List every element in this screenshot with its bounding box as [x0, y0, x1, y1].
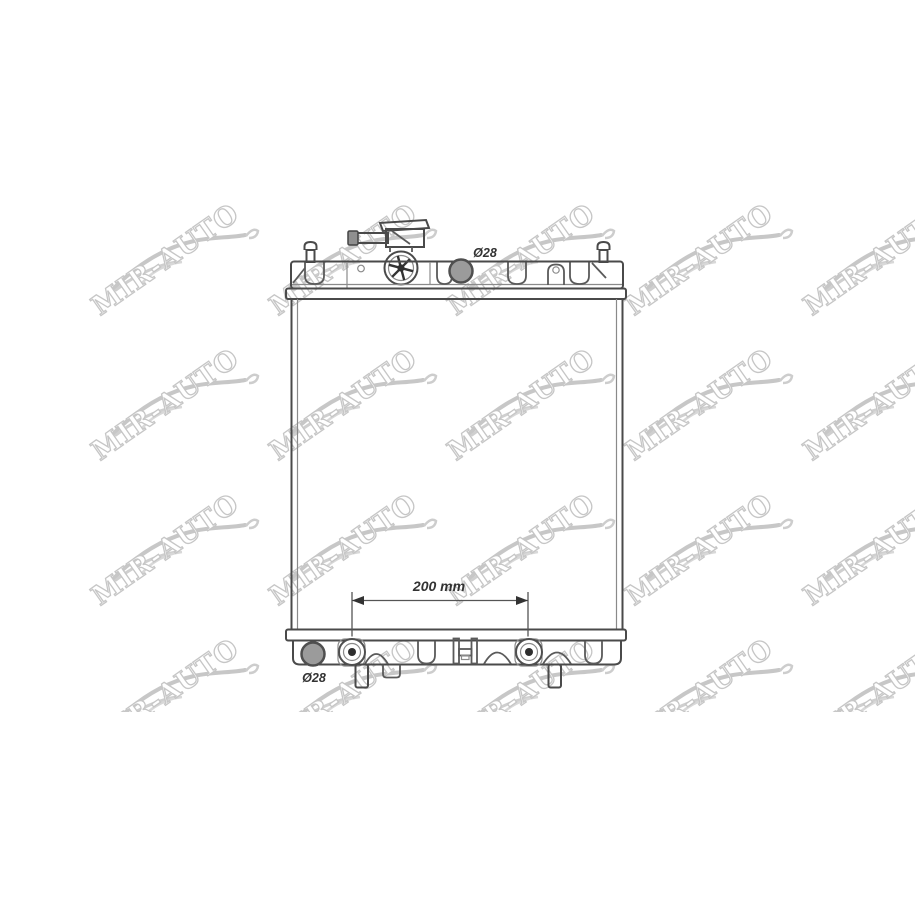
- arrowhead-right: [516, 596, 528, 605]
- pipe-end-cap: [348, 231, 358, 245]
- molded-peak: [543, 653, 571, 665]
- mounting-pin-right: [598, 242, 610, 262]
- radiator-technical-drawing: Ø28 Ø28: [0, 0, 915, 915]
- fitting-right: [515, 639, 542, 666]
- mounting-pin-left: [305, 242, 317, 262]
- dimension-label: 200 mm: [412, 578, 465, 594]
- fitting-center: [525, 648, 533, 656]
- inlet-port: [450, 260, 473, 283]
- corner-chamfer-left: [293, 268, 305, 283]
- bottom-port-diameter-label: Ø28: [302, 671, 326, 685]
- tank-hole: [358, 265, 365, 272]
- tank-cutout: [570, 263, 589, 285]
- tank-arch-tab: [548, 265, 564, 286]
- molded-peak: [365, 654, 388, 664]
- pin-stem: [600, 250, 608, 262]
- radiator-cap-icon: [385, 252, 418, 285]
- mounting-leg-right: [549, 665, 562, 688]
- overflow-pipe: [356, 233, 388, 243]
- center-bracket: [454, 639, 478, 664]
- arrowhead-left: [352, 596, 364, 605]
- pin-cap: [305, 242, 317, 250]
- fitting-center: [348, 648, 356, 656]
- top-flange: [286, 289, 626, 300]
- mounting-leg-left: [356, 665, 369, 688]
- bracket-tab: [462, 656, 470, 660]
- catalog-part-image: MIR-AUTOMIR-AUTOMIR-AUTOMIR-AUTOMIR-AUTO…: [0, 0, 915, 915]
- filler-neck: [348, 220, 429, 252]
- corner-chamfer-right: [592, 263, 606, 278]
- molded-peak: [484, 653, 511, 665]
- tank-cutout: [418, 641, 435, 664]
- bracket-crossbar: [459, 649, 472, 656]
- dimension-200mm: 200 mm: [352, 578, 528, 637]
- pin-cap: [598, 242, 610, 250]
- tank-cutout: [305, 263, 324, 285]
- tab-hole: [553, 267, 559, 273]
- top-port-diameter-label: Ø28: [473, 246, 497, 260]
- bottom-tab: [383, 665, 400, 678]
- pin-stem: [307, 250, 315, 262]
- cap-hub: [397, 264, 404, 271]
- fitting-left: [338, 639, 365, 666]
- tank-cutout: [585, 641, 602, 664]
- outlet-port: [302, 643, 325, 666]
- neck-detail-line: [392, 231, 410, 244]
- tank-cutout: [508, 263, 526, 285]
